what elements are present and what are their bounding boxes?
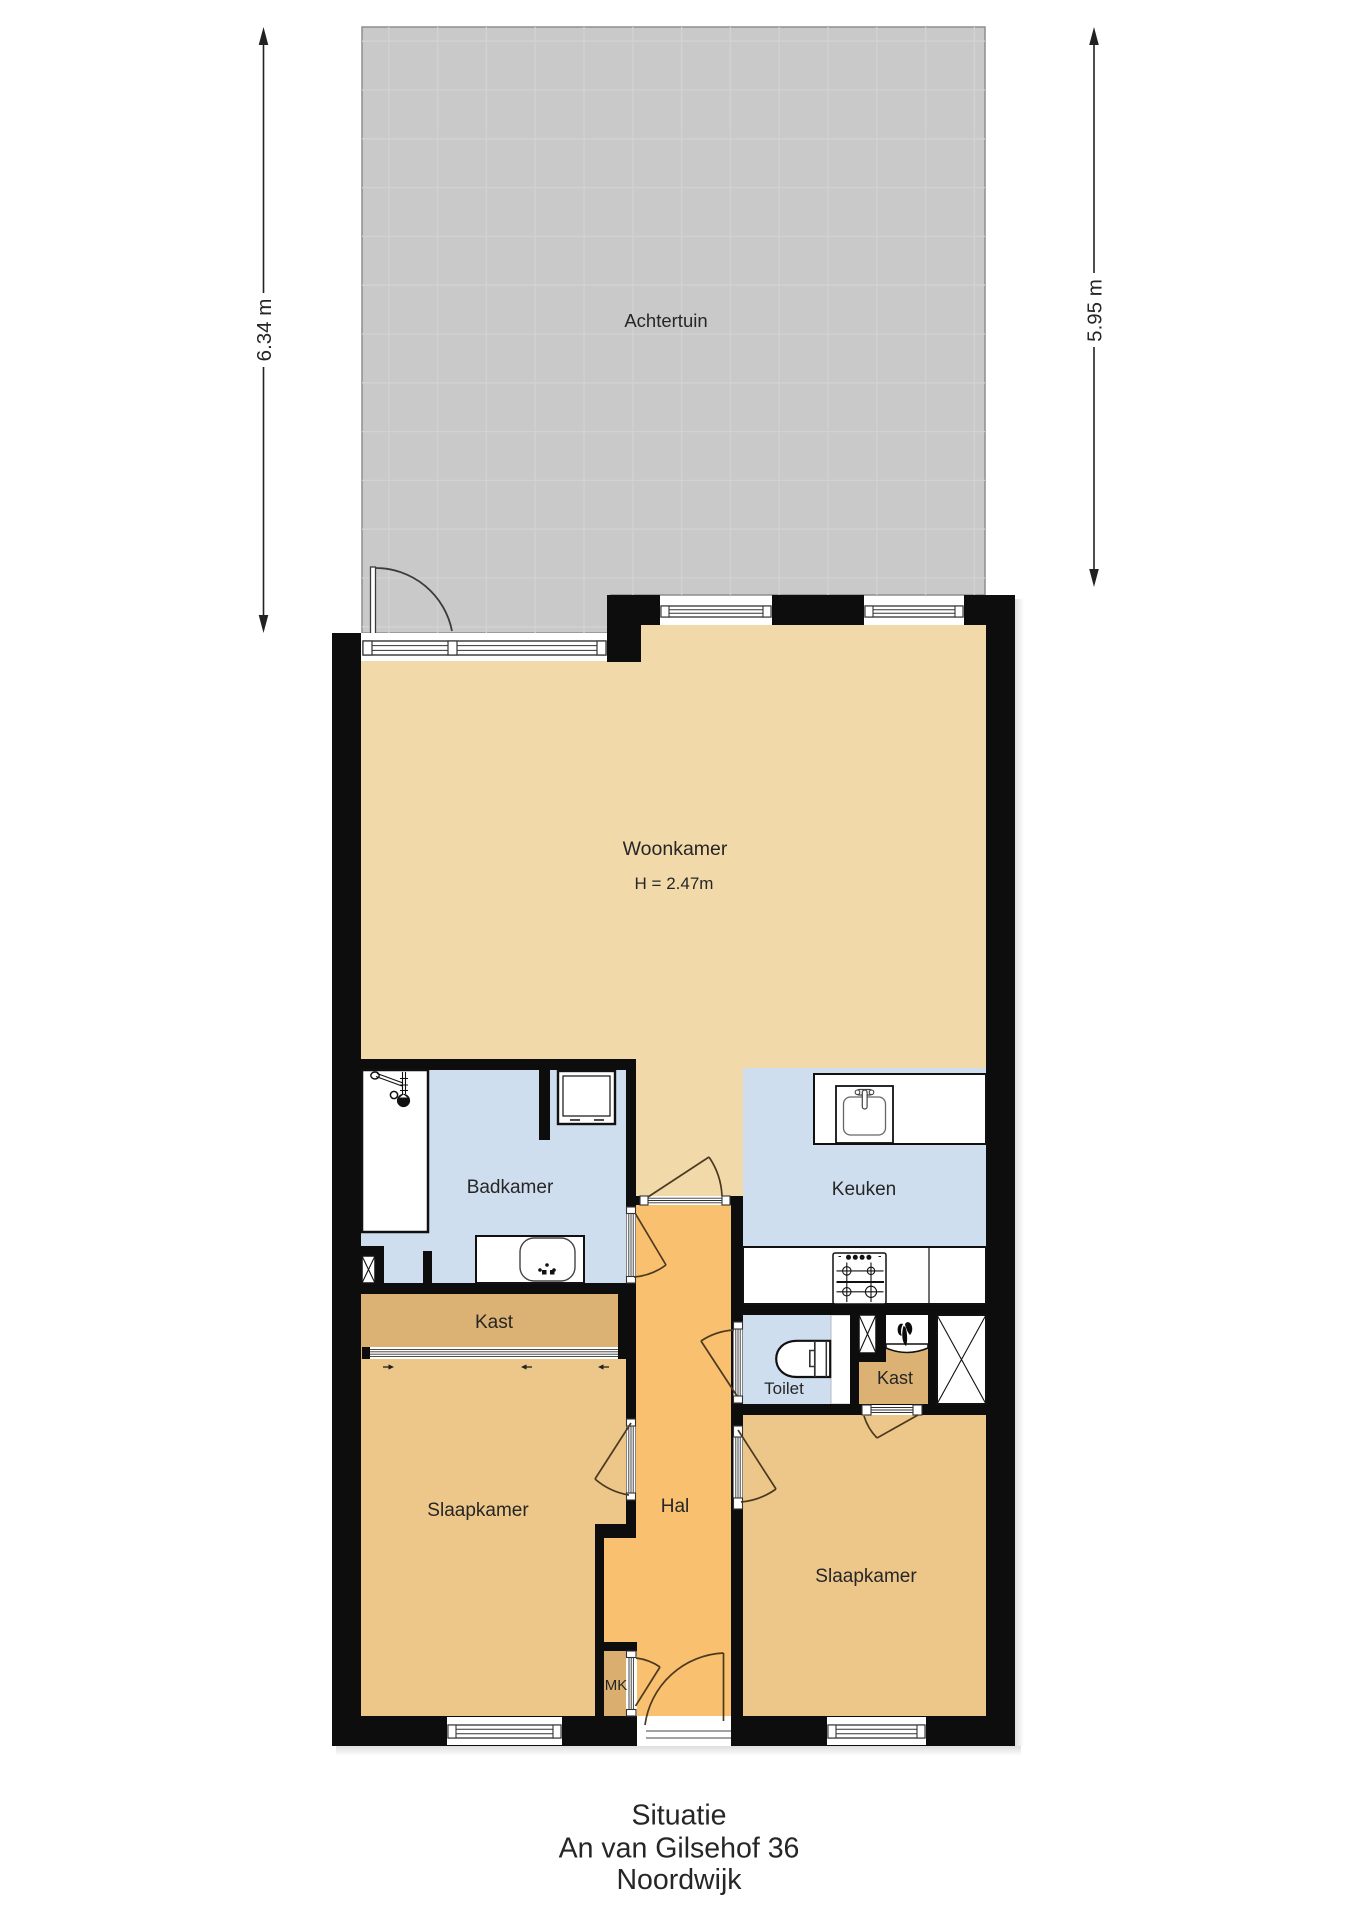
svg-text:H = 2.47m: H = 2.47m [635, 874, 714, 893]
svg-text:Toilet: Toilet [764, 1379, 804, 1398]
svg-text:Situatie: Situatie [631, 1800, 726, 1832]
svg-text:MK: MK [605, 1677, 628, 1694]
svg-text:Kast: Kast [475, 1312, 514, 1333]
svg-text:6.34 m: 6.34 m [253, 299, 276, 362]
svg-text:Badkamer: Badkamer [467, 1177, 554, 1198]
svg-text:An van Gilsehof 36: An van Gilsehof 36 [559, 1833, 800, 1865]
svg-text:Achtertuin: Achtertuin [624, 310, 707, 331]
svg-text:Slaapkamer: Slaapkamer [427, 1500, 529, 1521]
svg-text:Slaapkamer: Slaapkamer [815, 1566, 917, 1587]
svg-text:Keuken: Keuken [832, 1179, 896, 1200]
svg-text:Noordwijk: Noordwijk [616, 1864, 742, 1896]
svg-text:Woonkamer: Woonkamer [623, 838, 728, 860]
svg-text:Kast: Kast [877, 1368, 913, 1388]
svg-text:Hal: Hal [661, 1496, 690, 1517]
svg-text:5.95 m: 5.95 m [1084, 279, 1107, 342]
